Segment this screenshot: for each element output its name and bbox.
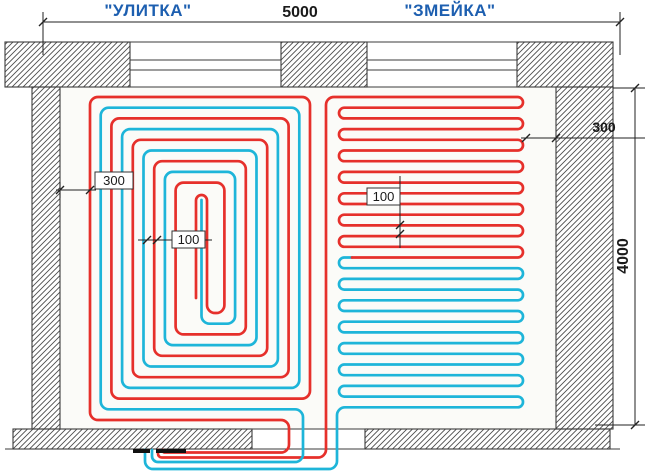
serpentine-scheme-title: "ЗМЕЙКА" — [404, 1, 495, 20]
wall-penetration-mark — [133, 449, 150, 453]
wall-penetration-mark — [156, 449, 186, 453]
window-right — [367, 42, 517, 87]
wall-bottom-right — [365, 429, 610, 449]
wall-top-mid-pier — [281, 42, 367, 87]
spiral-spacing-value: 100 — [178, 232, 200, 247]
wall-bottom-left — [13, 429, 252, 449]
serpentine-spacing-value: 100 — [373, 189, 395, 204]
window-left — [130, 42, 281, 87]
right-offset-value: 300 — [592, 119, 616, 135]
wall-top-left-pier — [5, 42, 130, 87]
room-height-value: 4000 — [615, 238, 632, 274]
wall-left — [32, 87, 60, 429]
left-offset-value: 300 — [103, 173, 125, 188]
wall-penetration-marks — [133, 449, 186, 453]
wall-top-right-pier — [517, 42, 613, 87]
spiral-scheme-title: "УЛИТКА" — [104, 1, 191, 20]
floor-heating-diagram: 300 100 100 300 5000 4000 "УЛИТКА" "ЗМЕЙ… — [0, 0, 651, 472]
diagram-canvas: 300 100 100 300 5000 4000 "УЛИТКА" "ЗМЕЙ… — [0, 0, 651, 472]
room-width-value: 5000 — [282, 4, 318, 21]
